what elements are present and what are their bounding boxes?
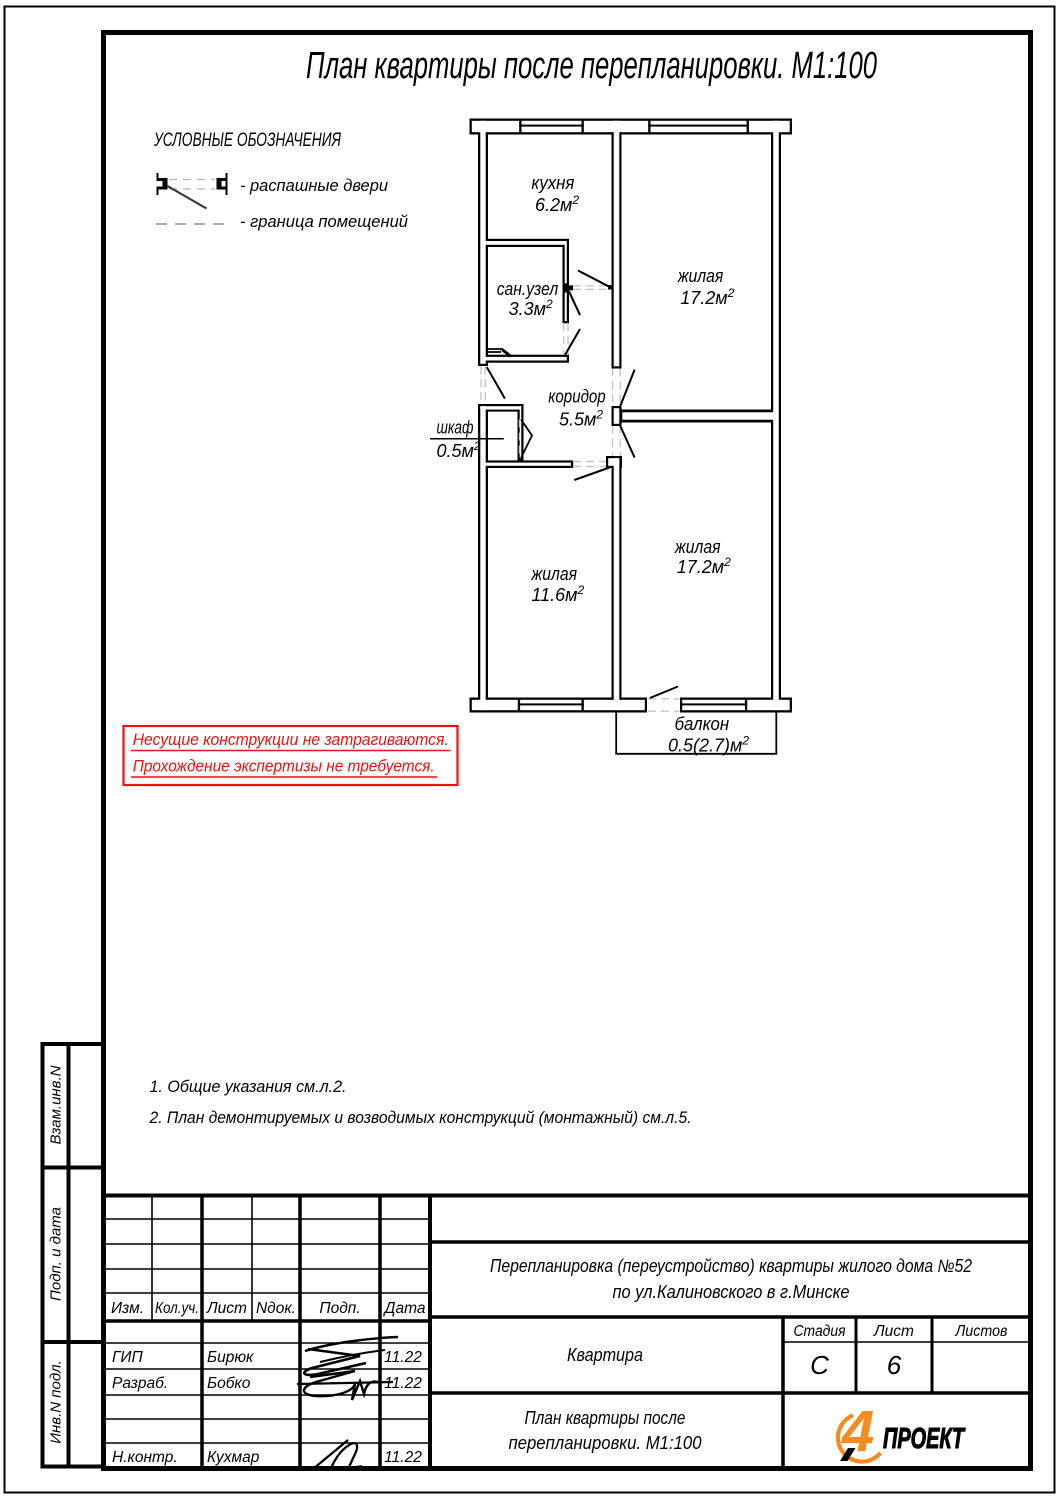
- svg-text:- распашные двери: - распашные двери: [240, 176, 389, 195]
- svg-text:кухня: кухня: [531, 173, 574, 193]
- svg-text:5.5м2: 5.5м2: [559, 408, 603, 430]
- svg-text:Н.контр.: Н.контр.: [112, 1449, 178, 1466]
- svg-text:17.2м2: 17.2м2: [677, 555, 731, 577]
- svg-text:План квартиры после перепланир: План квартиры после перепланировки. М1:1…: [306, 45, 877, 87]
- svg-text:Взам.инв.N: Взам.инв.N: [48, 1065, 65, 1144]
- svg-text:ПРОЕКТ: ПРОЕКТ: [883, 1423, 966, 1455]
- svg-text:Разраб.: Разраб.: [112, 1375, 168, 1392]
- svg-text:сан.узел: сан.узел: [497, 279, 559, 299]
- svg-text:Прохождение экспертизы не треб: Прохождение экспертизы не требуется.: [133, 757, 435, 776]
- svg-text:11.22: 11.22: [384, 1449, 422, 1466]
- svg-text:Подп. и дата: Подп. и дата: [48, 1207, 65, 1301]
- svg-text:Инв.N подл.: Инв.N подл.: [48, 1360, 65, 1444]
- svg-text:Несущие конструкции не затраги: Несущие конструкции не затрагиваются.: [133, 730, 449, 749]
- svg-text:Квартира: Квартира: [567, 1345, 643, 1365]
- svg-text:Стадия: Стадия: [794, 1323, 846, 1340]
- svg-text:11.6м2: 11.6м2: [531, 583, 584, 605]
- svg-text:жилая: жилая: [674, 537, 721, 557]
- svg-text:ГИП: ГИП: [112, 1349, 144, 1366]
- svg-text:11.22: 11.22: [384, 1375, 422, 1392]
- svg-text:перепланировки. М1:100: перепланировки. М1:100: [509, 1433, 702, 1453]
- svg-text:Кол.уч.: Кол.уч.: [155, 1300, 199, 1317]
- svg-text:- граница помещений: - граница помещений: [240, 212, 409, 231]
- svg-text:Кухмар: Кухмар: [207, 1449, 260, 1466]
- svg-text:6.2м2: 6.2м2: [535, 193, 579, 215]
- svg-text:6: 6: [887, 1350, 902, 1380]
- svg-text:Изм.: Изм.: [111, 1300, 144, 1317]
- svg-text:С: С: [810, 1350, 829, 1380]
- svg-text:Nдок.: Nдок.: [256, 1300, 296, 1317]
- svg-text:Подп.: Подп.: [319, 1300, 360, 1317]
- svg-text:0.5(2.7)м2: 0.5(2.7)м2: [668, 734, 749, 756]
- svg-text:Бирюк: Бирюк: [207, 1349, 254, 1366]
- svg-text:Перепланировка (переустройство: Перепланировка (переустройство) квартиры…: [490, 1256, 972, 1276]
- svg-text:Листов: Листов: [955, 1323, 1008, 1340]
- svg-text:3.3м2: 3.3м2: [509, 297, 553, 319]
- svg-text:Дата: Дата: [383, 1300, 426, 1317]
- svg-text:Лист: Лист: [206, 1300, 247, 1317]
- svg-text:Бобко: Бобко: [207, 1375, 251, 1392]
- svg-text:шкаф: шкаф: [437, 418, 474, 438]
- svg-text:коридор: коридор: [548, 387, 605, 407]
- svg-text:2. План демонтируемых и возвод: 2. План демонтируемых и возводимых конст…: [149, 1108, 692, 1127]
- svg-text:План квартиры после: План квартиры после: [525, 1408, 686, 1428]
- svg-text:1. Общие указания см.л.2.: 1. Общие указания см.л.2.: [150, 1077, 347, 1096]
- svg-text:17.2м2: 17.2м2: [680, 286, 734, 308]
- svg-text:жилая: жилая: [531, 564, 578, 584]
- svg-text:11.22: 11.22: [384, 1349, 422, 1366]
- svg-text:балкон: балкон: [675, 714, 730, 734]
- svg-text:0.5м2: 0.5м2: [437, 439, 481, 461]
- svg-text:жилая: жилая: [677, 266, 724, 286]
- svg-text:Лист: Лист: [873, 1323, 914, 1340]
- svg-text:УСЛОВНЫЕ ОБОЗНАЧЕНИЯ: УСЛОВНЫЕ ОБОЗНАЧЕНИЯ: [153, 130, 341, 151]
- svg-text:по ул.Калиновского в г.Минске: по ул.Калиновского в г.Минске: [613, 1282, 850, 1302]
